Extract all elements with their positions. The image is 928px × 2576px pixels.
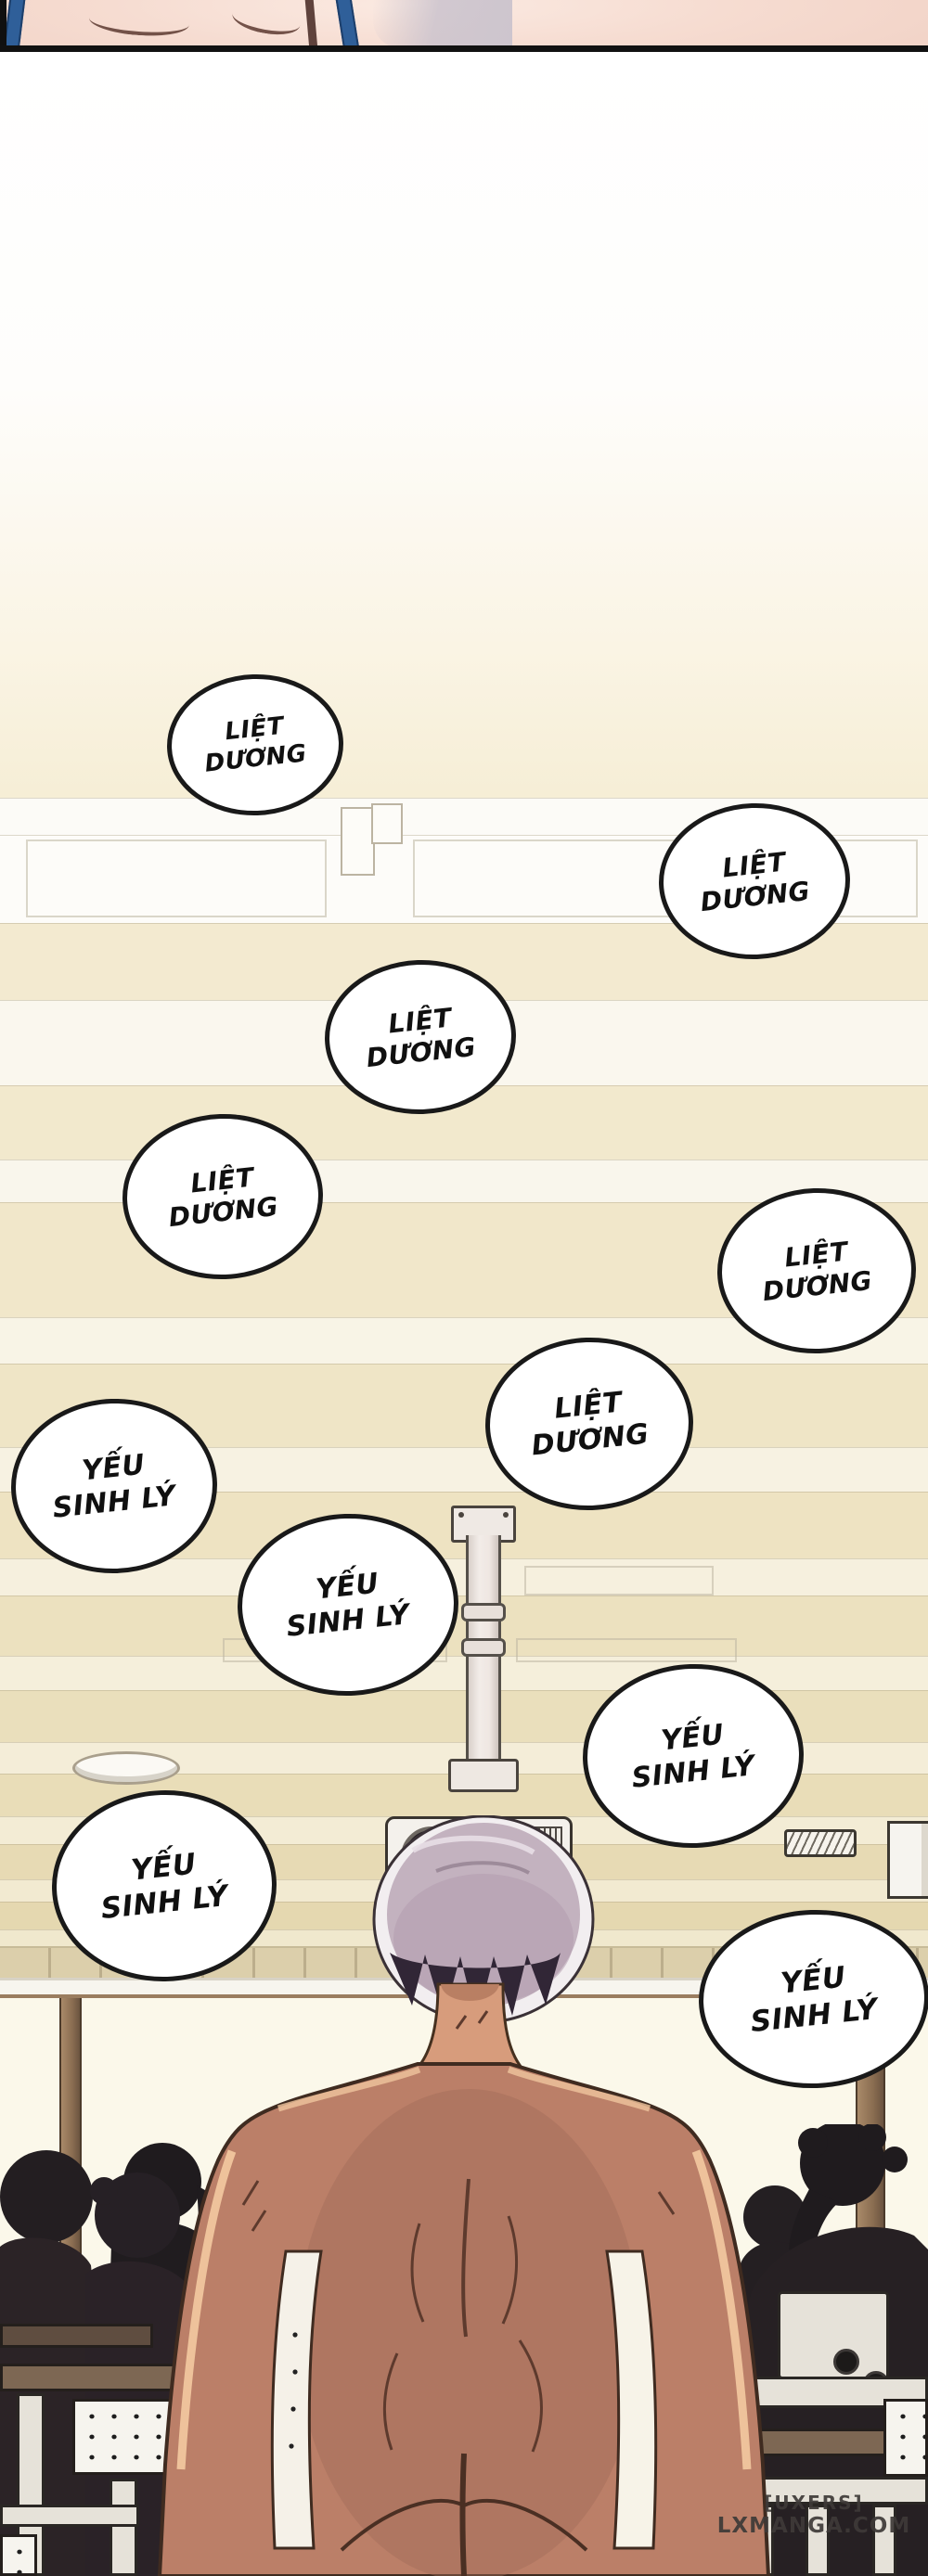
screw-icon <box>503 1512 509 1518</box>
watermark-line2: LXMANGA.COM <box>716 2514 911 2538</box>
recessed-downlight <box>72 1751 180 1785</box>
skin-crease-line <box>88 4 190 38</box>
previous-panel-fragment <box>0 0 928 52</box>
bubble-text: SINH LÝ <box>52 1480 178 1526</box>
ceiling-light-outline <box>516 1638 737 1662</box>
watermark: [UXERS] LXMANGA.COM <box>716 2492 911 2538</box>
screw-icon <box>458 1512 464 1518</box>
ceiling-band <box>0 1656 928 1691</box>
bubble-text: DƯƠNG <box>203 739 308 779</box>
hair-shading <box>373 0 512 48</box>
bubble-text: DƯƠNG <box>761 1265 874 1308</box>
pole-coupling <box>461 1603 506 1621</box>
bubble-text: DƯƠNG <box>167 1191 280 1234</box>
bubble-text: SINH LÝ <box>286 1598 412 1645</box>
bubble-text: DƯƠNG <box>530 1417 651 1464</box>
panel-border-bottom <box>0 45 928 52</box>
pole-coupling <box>461 1638 506 1657</box>
ceiling-bracket <box>341 807 375 876</box>
projector-bracket <box>448 1759 519 1792</box>
bubble-text: SINH LÝ <box>749 1993 880 2041</box>
hair-strand <box>304 0 317 52</box>
skin-crease-line <box>230 0 303 39</box>
bubble-text: DƯƠNG <box>699 876 812 918</box>
manga-page: LIỆT DƯƠNG LIỆT DƯƠNG LIỆT DƯƠNG LIỆT DƯ… <box>0 0 928 2576</box>
bubble-text: SINH LÝ <box>631 1749 757 1796</box>
bubble-text: SINH LÝ <box>99 1879 230 1928</box>
ceiling-bracket <box>371 803 403 844</box>
ceiling-light-outline <box>524 1566 714 1596</box>
page-background <box>0 52 928 798</box>
bubble-text: DƯƠNG <box>365 1032 478 1074</box>
panel-border-left <box>0 0 6 52</box>
watermark-line1: [UXERS] <box>716 2492 911 2514</box>
ceiling-light-outline <box>26 839 327 917</box>
